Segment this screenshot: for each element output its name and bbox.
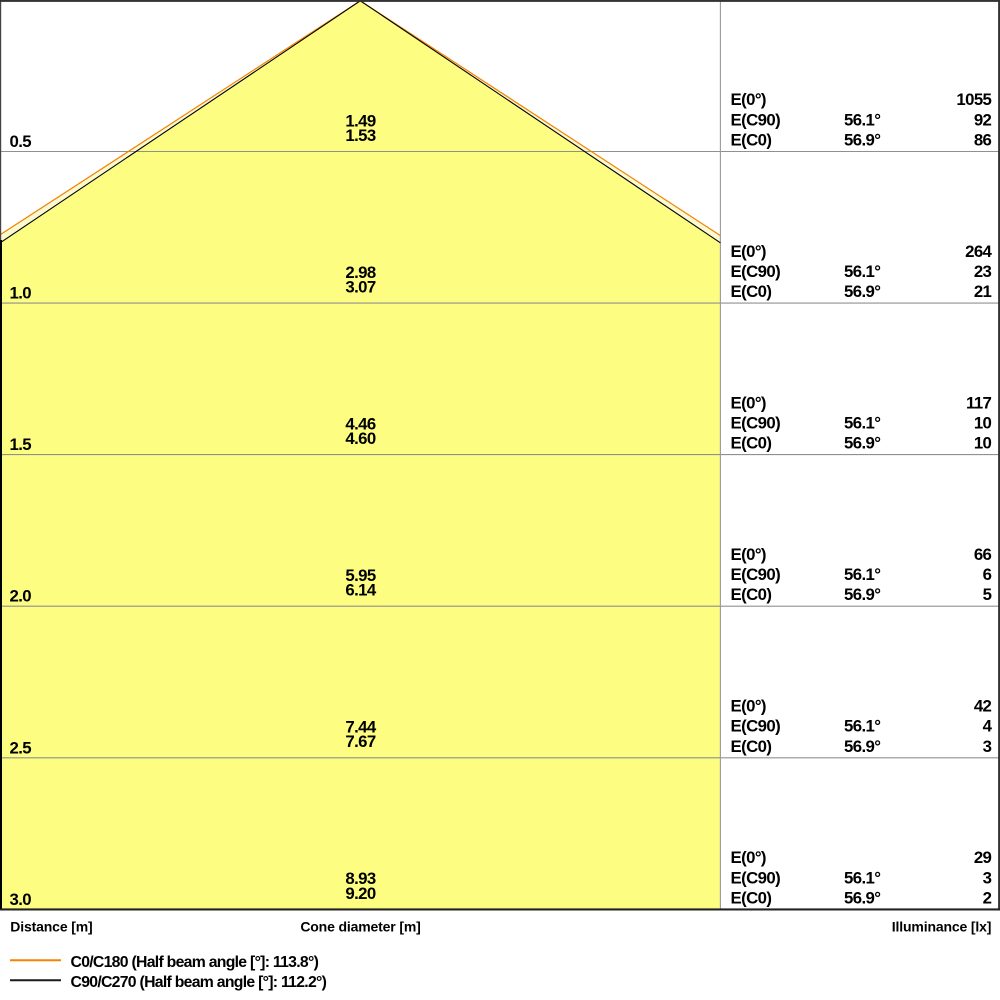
svg-text:56.1°: 56.1°: [844, 262, 880, 281]
svg-text:56.1°: 56.1°: [844, 110, 880, 129]
svg-text:56.9°: 56.9°: [844, 131, 880, 150]
svg-text:Cone diameter [m]: Cone diameter [m]: [300, 918, 420, 934]
svg-text:E(C0): E(C0): [731, 888, 772, 907]
svg-text:56.9°: 56.9°: [844, 585, 880, 604]
svg-text:9.20: 9.20: [345, 884, 376, 903]
svg-text:2.0: 2.0: [10, 587, 32, 606]
svg-text:E(C0): E(C0): [731, 282, 772, 301]
svg-text:E(C90): E(C90): [731, 110, 781, 129]
svg-text:E(0°): E(0°): [731, 848, 766, 867]
svg-text:10: 10: [974, 434, 992, 453]
svg-text:56.1°: 56.1°: [844, 565, 880, 584]
svg-text:E(0°): E(0°): [731, 393, 766, 412]
svg-text:0.5: 0.5: [10, 132, 32, 151]
svg-text:117: 117: [966, 393, 992, 412]
svg-text:E(C90): E(C90): [731, 565, 781, 584]
svg-text:2.5: 2.5: [10, 738, 32, 757]
svg-text:E(C0): E(C0): [731, 737, 772, 756]
svg-text:56.9°: 56.9°: [844, 888, 880, 907]
svg-text:3.0: 3.0: [10, 890, 32, 909]
svg-text:E(0°): E(0°): [731, 242, 766, 261]
svg-text:4: 4: [983, 717, 993, 736]
svg-text:56.1°: 56.1°: [844, 868, 880, 887]
svg-text:1.0: 1.0: [10, 284, 32, 303]
svg-text:E(0°): E(0°): [731, 545, 766, 564]
svg-text:6: 6: [983, 565, 992, 584]
svg-text:E(0°): E(0°): [731, 90, 766, 109]
svg-text:3: 3: [983, 737, 992, 756]
svg-text:42: 42: [974, 697, 992, 716]
svg-text:C0/C180 (Half beam angle [°]:: C0/C180 (Half beam angle [°]: 113.8°): [71, 954, 319, 971]
svg-text:Distance [m]: Distance [m]: [10, 918, 92, 934]
svg-text:E(C90): E(C90): [731, 717, 781, 736]
svg-text:3: 3: [983, 868, 992, 887]
svg-text:E(C0): E(C0): [731, 434, 772, 453]
svg-text:3.07: 3.07: [345, 278, 376, 297]
svg-text:5: 5: [983, 585, 992, 604]
svg-text:E(0°): E(0°): [731, 697, 766, 716]
svg-text:E(C90): E(C90): [731, 414, 781, 433]
svg-text:56.9°: 56.9°: [844, 434, 880, 453]
svg-text:6.14: 6.14: [345, 581, 377, 600]
svg-text:1055: 1055: [956, 90, 991, 109]
svg-text:29: 29: [974, 848, 992, 867]
svg-text:56.9°: 56.9°: [844, 737, 880, 756]
svg-text:Illuminance [lx]: Illuminance [lx]: [892, 918, 992, 934]
svg-text:1.5: 1.5: [10, 435, 32, 454]
svg-text:264: 264: [965, 242, 992, 261]
svg-text:7.67: 7.67: [345, 732, 376, 751]
svg-text:23: 23: [974, 262, 992, 281]
svg-text:92: 92: [974, 110, 992, 129]
svg-text:4.60: 4.60: [345, 429, 376, 448]
svg-text:1.53: 1.53: [345, 126, 376, 145]
svg-text:66: 66: [974, 545, 992, 564]
svg-text:56.1°: 56.1°: [844, 717, 880, 736]
svg-text:E(C0): E(C0): [731, 131, 772, 150]
svg-text:56.1°: 56.1°: [844, 414, 880, 433]
svg-text:C90/C270 (Half beam angle [°]:: C90/C270 (Half beam angle [°]: 112.2°): [71, 974, 327, 991]
svg-text:56.9°: 56.9°: [844, 282, 880, 301]
svg-text:21: 21: [974, 282, 992, 301]
svg-text:2: 2: [983, 888, 992, 907]
svg-text:E(C0): E(C0): [731, 585, 772, 604]
svg-text:10: 10: [974, 414, 992, 433]
svg-text:86: 86: [974, 131, 992, 150]
svg-text:E(C90): E(C90): [731, 262, 781, 281]
svg-text:E(C90): E(C90): [731, 868, 781, 887]
